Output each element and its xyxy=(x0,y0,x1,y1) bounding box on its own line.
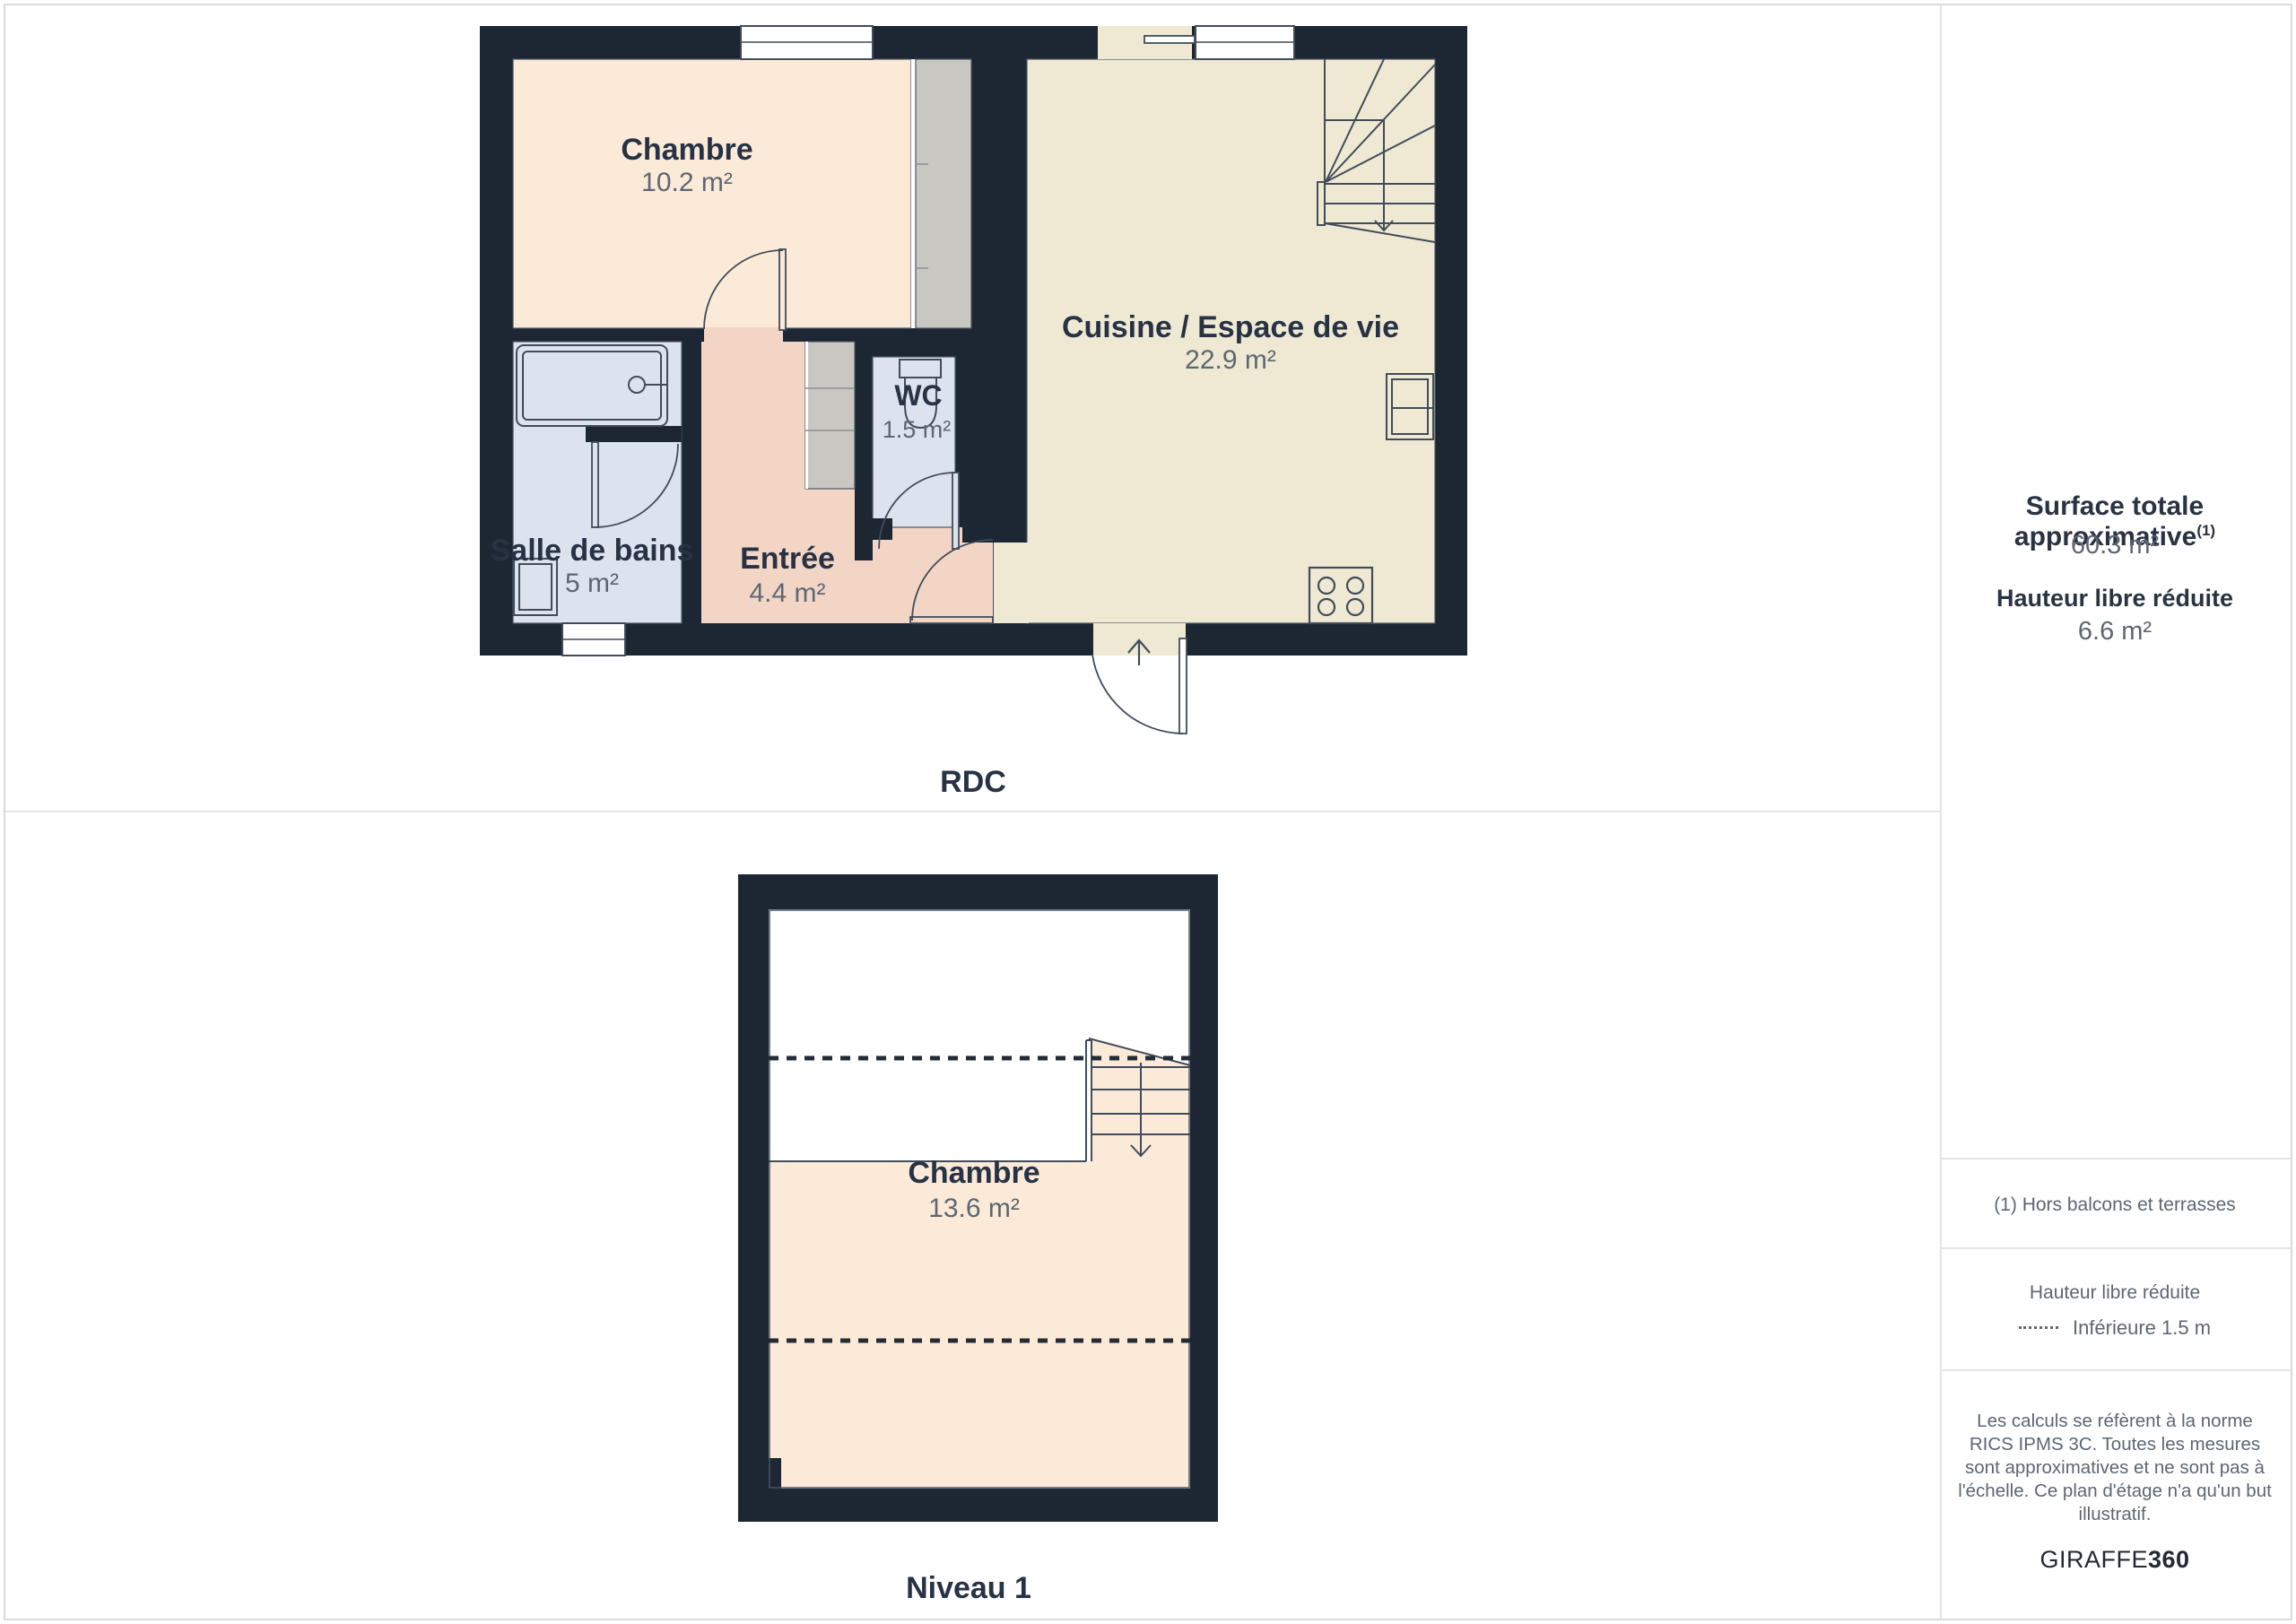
wall-stub xyxy=(864,518,892,540)
top-door-leaf xyxy=(1144,36,1195,43)
legend-item-label: Inférieure 1.5 m xyxy=(2073,1316,2211,1339)
dashed-line-sample xyxy=(2019,1323,2058,1329)
sidebar-section-divider xyxy=(1940,1158,2291,1159)
entree-closet xyxy=(805,342,855,489)
wc-label: WC xyxy=(894,379,942,412)
window xyxy=(562,623,625,656)
cuisine-area: 22.9 m² xyxy=(1185,345,1276,375)
niveau1-chambre-area: 13.6 m² xyxy=(928,1194,1020,1223)
salle-de-bains-label: Salle de bains xyxy=(491,534,694,568)
sidebar-section-divider xyxy=(1940,1247,2291,1249)
entree-floor xyxy=(855,560,873,623)
entree-closet-separator xyxy=(805,342,808,489)
brand-logo: GIRAFFE360 xyxy=(1940,1546,2290,1574)
entree-area: 4.4 m² xyxy=(749,578,825,608)
niveau1-floor-label: Niveau 1 xyxy=(906,1571,1031,1605)
window xyxy=(741,26,873,59)
wc-area: 1.5 m² xyxy=(883,416,952,443)
legend-title: Hauteur libre réduite xyxy=(1940,1282,2290,1304)
chambre-closet xyxy=(916,59,971,328)
wall-stub xyxy=(586,426,682,442)
disclaimer-text: Les calculs se réfèrent à la norme RICS … xyxy=(1957,1410,2273,1526)
floorplan-page: { "plans": { "rdc": { "label": "RDC", "r… xyxy=(0,0,2296,1624)
rdc-plan: Chambre 10.2 m² Cuisine / Espace de vie … xyxy=(480,26,1467,799)
chambre-area: 10.2 m² xyxy=(641,168,733,197)
salle-de-bains-area: 5 m² xyxy=(565,569,619,598)
legend-row: Inférieure 1.5 m xyxy=(1940,1316,2290,1340)
entree-label: Entrée xyxy=(740,542,835,576)
plans-divider xyxy=(5,811,1940,812)
niveau1-plan: Chambre 13.6 m² Niveau 1 xyxy=(738,874,1218,1605)
hauteur-libre-value: 6.6 m² xyxy=(1940,617,2290,647)
rdc-floor-label: RDC xyxy=(940,765,1006,799)
wall-notch xyxy=(769,1458,781,1489)
footnote: (1) Hors balcons et terrasses xyxy=(1940,1194,2290,1216)
entree-floor xyxy=(873,527,962,623)
cuisine-floor-ext xyxy=(993,543,1029,623)
chambre-door-opening xyxy=(704,327,783,342)
entree-floor xyxy=(962,543,993,623)
hauteur-libre-title: Hauteur libre réduite xyxy=(1940,585,2290,612)
cuisine-label: Cuisine / Espace de vie xyxy=(1062,310,1399,344)
closet-separator xyxy=(911,59,916,328)
window xyxy=(1196,26,1294,59)
chambre-label: Chambre xyxy=(621,133,752,167)
surface-total-value: 60.3 m² xyxy=(1940,531,2290,560)
niveau1-chambre-label: Chambre xyxy=(908,1156,1039,1190)
sidebar-divider xyxy=(1940,5,1942,1619)
sidebar-section-divider xyxy=(1940,1369,2291,1371)
